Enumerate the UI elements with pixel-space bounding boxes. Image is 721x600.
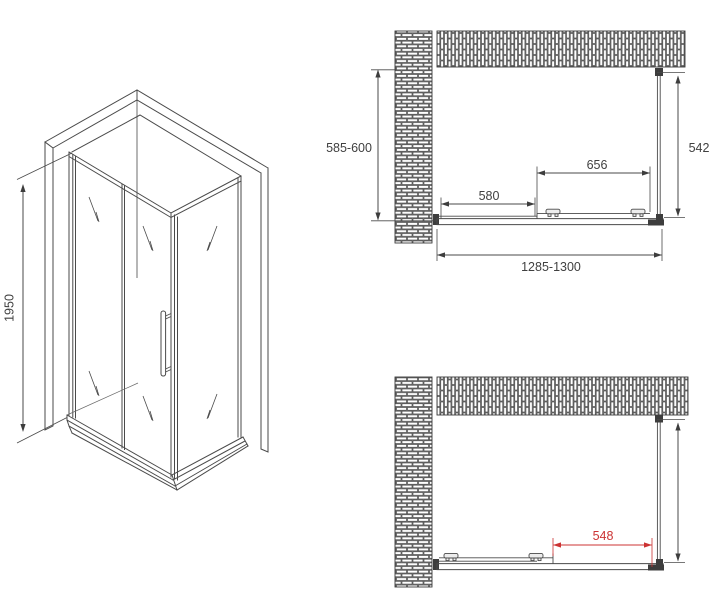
wall-profile-top [655, 68, 663, 76]
dimension-overall-width: 1285-1300 [437, 229, 662, 274]
glass-depth-dimension-label: 542 [689, 141, 710, 155]
drawing-canvas: 1950 [0, 0, 721, 600]
isometric-view: 1950 [3, 90, 269, 490]
technical-drawing-sheet: 1950 [0, 0, 721, 600]
roller-right [529, 553, 543, 560]
plan-view-closed: 585-600 542 656 580 [326, 31, 709, 274]
fixed-panel-width-dimension-label: 580 [479, 189, 500, 203]
wall-profile-top [655, 415, 663, 423]
corner-bracket [648, 214, 664, 226]
depth-range-dimension-label: 585-600 [326, 141, 372, 155]
glass-reflection-marks [89, 197, 217, 421]
height-dimension: 1950 [3, 153, 73, 443]
side-glass-panel [657, 423, 660, 564]
dimension-glass-depth: 542 [657, 73, 709, 218]
roller-left [546, 209, 560, 216]
plan-view-open: 548 [395, 377, 688, 587]
roller-right [631, 209, 645, 216]
dimension-door-opening: 548 [553, 529, 652, 567]
wall-profile-left [433, 559, 439, 570]
door-handle [161, 311, 171, 376]
enclosure-frame [69, 115, 241, 480]
back-wall-panels [45, 90, 268, 452]
overall-width-dimension-label: 1285-1300 [521, 260, 581, 274]
corner-bracket [648, 559, 664, 571]
height-dimension-label: 1950 [3, 294, 17, 322]
side-glass-panel [657, 76, 660, 218]
door-width-dimension-label: 656 [587, 158, 608, 172]
door-track [437, 554, 663, 570]
shower-tray [67, 383, 248, 490]
dimension-fixed-panel-width: 580 [441, 189, 535, 219]
dimension-side-unlabeled [657, 420, 685, 563]
door-opening-dimension-label: 548 [593, 529, 614, 543]
roller-left [444, 553, 458, 560]
wall-profile-left [433, 214, 439, 225]
dimension-door-width: 656 [537, 158, 650, 217]
